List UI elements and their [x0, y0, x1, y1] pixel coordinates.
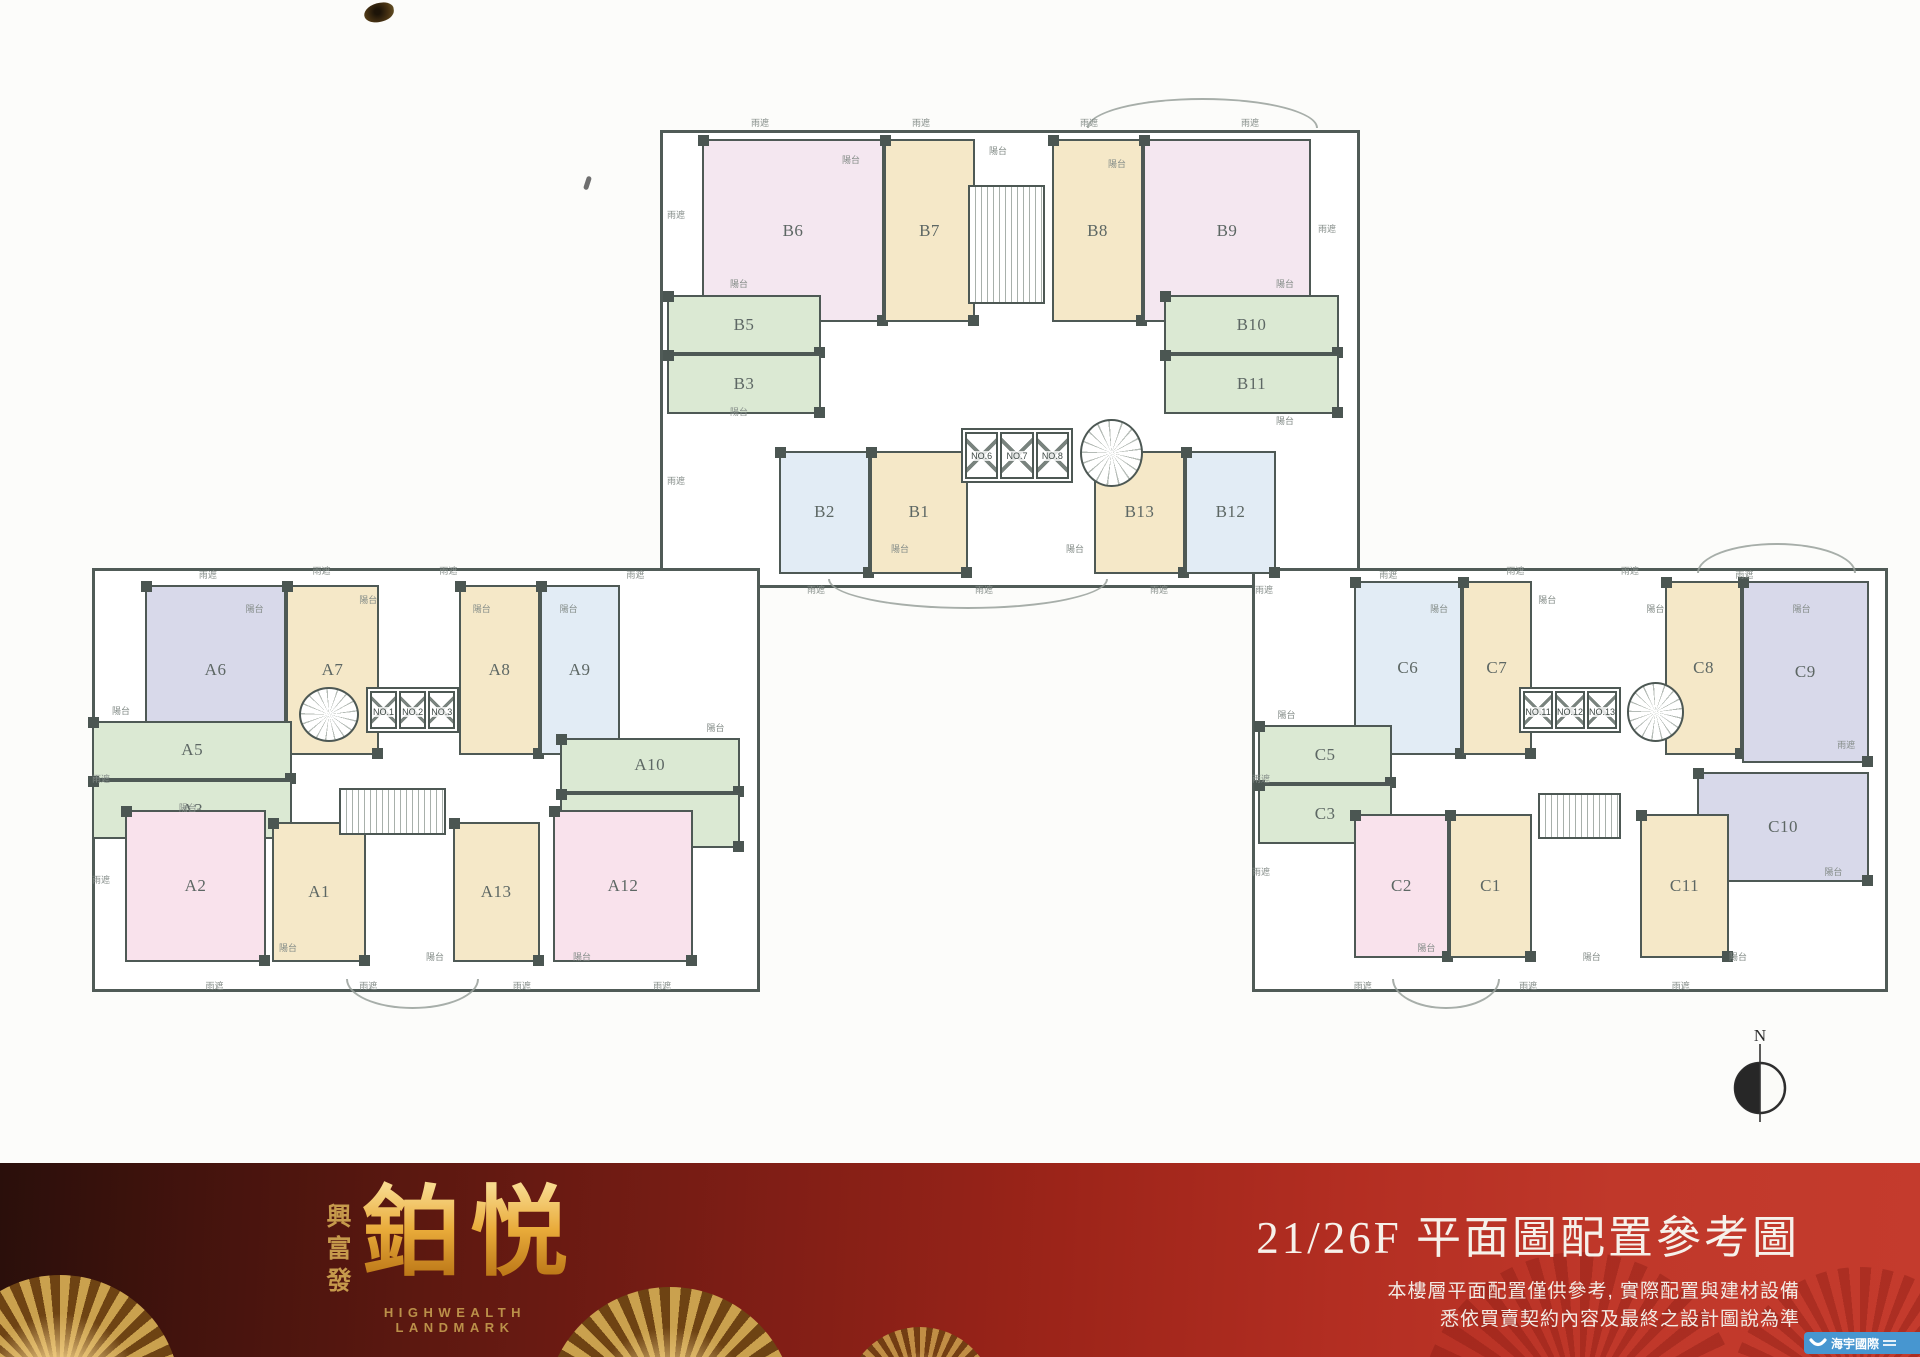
- unit-b8: B8: [1052, 139, 1143, 322]
- elevator-label: NO.6: [967, 451, 996, 461]
- annotation-label: 陽台: [989, 144, 1007, 157]
- elevator-cell: NO.1: [370, 691, 397, 730]
- brand-name: 鉑悦: [362, 1181, 578, 1289]
- unit-b2: B2: [779, 451, 870, 575]
- annotation-label: 陽台: [891, 542, 909, 555]
- annotation-label: 陽台: [426, 950, 444, 963]
- elevator-cell: NO.7: [1000, 432, 1033, 479]
- watermark-fine-print: [1883, 1340, 1896, 1346]
- elevator-label: NO.12: [1557, 707, 1583, 717]
- unit-label: C10: [1768, 817, 1798, 837]
- annotation-label: 陽台: [246, 602, 264, 615]
- annotation-label: 雨遮: [1318, 222, 1336, 235]
- elevator-label: NO.7: [1002, 451, 1031, 461]
- unit-a2: A2: [125, 810, 265, 963]
- annotation-label: 雨遮: [513, 979, 531, 992]
- unit-label: C3: [1315, 804, 1336, 824]
- watermark-logo-icon: [1809, 1337, 1827, 1349]
- entrance-arc: [828, 579, 1108, 609]
- unit-label: A2: [185, 876, 207, 896]
- annotation-label: 雨遮: [312, 564, 330, 577]
- annotation-label: 雨遮: [359, 979, 377, 992]
- annotation-label: 陽台: [112, 704, 130, 717]
- annotation-label: 雨遮: [439, 564, 457, 577]
- elevator-bank: NO.1NO.2NO.3: [366, 687, 460, 734]
- unit-label: C9: [1795, 662, 1816, 682]
- watermark-text: 海宇國際: [1831, 1335, 1879, 1352]
- stairwell: [968, 185, 1045, 304]
- unit-b11: B11: [1164, 354, 1339, 414]
- unit-label: A7: [322, 660, 344, 680]
- annotation-label: 陽台: [560, 602, 578, 615]
- unit-label: C8: [1693, 658, 1714, 678]
- unit-a8: A8: [459, 585, 539, 755]
- unit-b12: B12: [1185, 451, 1276, 575]
- fan-decoration: [0, 1275, 180, 1357]
- annotation-label: 雨遮: [667, 474, 685, 487]
- annotation-label: 陽台: [1729, 950, 1747, 963]
- building-b: B6B7B8B9B5B3B10B11B2B1B13B12NO.6NO.7NO.8…: [660, 130, 1360, 588]
- annotation-label: 陽台: [359, 593, 377, 606]
- unit-label: B7: [919, 221, 940, 241]
- unit-label: B11: [1237, 374, 1266, 394]
- annotation-label: 雨遮: [1241, 116, 1259, 129]
- annotation-label: 陽台: [730, 405, 748, 418]
- watermark-badge: 海宇國際: [1804, 1332, 1920, 1354]
- building-c: C6C7C8C9C5C3C10C2C1C11NO.11NO.12NO.13雨遮陽…: [1252, 568, 1888, 992]
- unit-label: A1: [308, 882, 330, 902]
- unit-label: B9: [1217, 221, 1238, 241]
- unit-label: A10: [634, 755, 665, 775]
- annotation-label: 雨遮: [92, 772, 110, 785]
- annotation-label: 陽台: [1277, 708, 1295, 721]
- annotation-label: 雨遮: [1506, 564, 1524, 577]
- elevator-bank: NO.6NO.7NO.8: [961, 428, 1073, 483]
- unit-label: A9: [569, 660, 591, 680]
- unit-label: B12: [1216, 502, 1246, 522]
- annotation-label: 雨遮: [1379, 568, 1397, 581]
- unit-label: B10: [1237, 315, 1267, 335]
- compass-dial: [1722, 1044, 1798, 1124]
- annotation-label: 陽台: [1793, 602, 1811, 615]
- unit-label: A6: [205, 660, 227, 680]
- unit-label: C7: [1486, 658, 1507, 678]
- annotation-label: 雨遮: [1354, 979, 1372, 992]
- unit-a10: A10: [560, 738, 740, 793]
- entrance-arc: [1697, 543, 1856, 573]
- annotation-label: 陽台: [1538, 593, 1556, 606]
- annotation-label: 雨遮: [1252, 865, 1270, 878]
- unit-c5: C5: [1258, 725, 1392, 784]
- unit-a5: A5: [92, 721, 292, 780]
- unit-label: A13: [481, 882, 512, 902]
- elevator-label: NO.2: [401, 707, 424, 717]
- spiral-stairwell: [1080, 419, 1143, 488]
- annotation-label: 陽台: [1276, 277, 1294, 290]
- unit-label: B13: [1125, 502, 1155, 522]
- annotation-label: 陽台: [1583, 950, 1601, 963]
- annotation-label: 雨遮: [912, 116, 930, 129]
- unit-label: B5: [734, 315, 755, 335]
- footer-banner: 興富發 鉑悦 HIGHWEALTH LANDMARK 21/26F 平面圖配置參…: [0, 1163, 1920, 1357]
- spiral-stairwell: [1627, 682, 1684, 741]
- annotation-label: 陽台: [1066, 542, 1084, 555]
- elevator-cell: NO.12: [1555, 691, 1585, 730]
- elevator-label: NO.11: [1525, 707, 1551, 717]
- title-block: 21/26F 平面圖配置參考圖 本樓層平面配置僅供參考, 實際配置與建材設備 悉…: [1256, 1201, 1800, 1333]
- disclaimer-line-1: 本樓層平面配置僅供參考, 實際配置與建材設備: [1256, 1278, 1800, 1306]
- scan-mark: [583, 176, 592, 191]
- stairwell: [339, 788, 446, 835]
- brand-subtitle: HIGHWEALTH LANDMARK: [320, 1305, 590, 1335]
- annotation-label: 雨遮: [1150, 583, 1168, 596]
- annotation-label: 陽台: [279, 941, 297, 954]
- annotation-label: 雨遮: [1672, 979, 1690, 992]
- elevator-cell: NO.13: [1587, 691, 1617, 730]
- unit-label: C5: [1315, 745, 1336, 765]
- annotation-label: 雨遮: [1735, 568, 1753, 581]
- elevator-cell: NO.8: [1036, 432, 1069, 479]
- annotation-label: 雨遮: [667, 208, 685, 221]
- unit-a9: A9: [540, 585, 620, 755]
- elevator-cell: NO.6: [965, 432, 998, 479]
- unit-a12: A12: [553, 810, 693, 963]
- annotation-label: 雨遮: [1519, 979, 1537, 992]
- unit-label: A12: [608, 876, 639, 896]
- unit-label: A5: [181, 740, 203, 760]
- annotation-label: 陽台: [1417, 941, 1435, 954]
- plan-sheet: B6B7B8B9B5B3B10B11B2B1B13B12NO.6NO.7NO.8…: [0, 0, 1920, 1357]
- unit-label: C11: [1670, 876, 1699, 896]
- unit-b10: B10: [1164, 295, 1339, 355]
- annotation-label: 雨遮: [653, 979, 671, 992]
- unit-b7: B7: [884, 139, 975, 322]
- unit-label: B3: [734, 374, 755, 394]
- annotation-label: 雨遮: [1621, 564, 1639, 577]
- brand-company: 興富發: [318, 1203, 354, 1299]
- annotation-label: 陽台: [707, 721, 725, 734]
- elevator-label: NO.1: [372, 707, 395, 717]
- annotation-label: 雨遮: [199, 568, 217, 581]
- unit-label: B1: [909, 502, 930, 522]
- unit-label: A8: [489, 660, 511, 680]
- annotation-label: 雨遮: [1252, 772, 1270, 785]
- annotation-label: 陽台: [1824, 865, 1842, 878]
- annotation-label: 陽台: [730, 277, 748, 290]
- north-label: N: [1722, 1026, 1798, 1044]
- building-a: A6A7A8A9A5A3A10A11A2A1A13A12NO.1NO.2NO.3…: [92, 568, 760, 992]
- entrance-arc: [1087, 98, 1318, 128]
- spiral-stairwell: [299, 687, 359, 742]
- annotation-label: 陽台: [1108, 157, 1126, 170]
- entrance-arc: [1392, 979, 1500, 1009]
- north-compass: N: [1722, 1026, 1798, 1126]
- elevator-cell: NO.11: [1523, 691, 1553, 730]
- annotation-label: 雨遮: [92, 873, 110, 886]
- unit-b1: B1: [870, 451, 968, 575]
- unit-label: B2: [814, 502, 835, 522]
- annotation-label: 雨遮: [1080, 116, 1098, 129]
- annotation-label: 雨遮: [975, 583, 993, 596]
- unit-label: B6: [783, 221, 804, 241]
- unit-b5: B5: [667, 295, 821, 355]
- annotation-label: 陽台: [573, 950, 591, 963]
- elevator-cell: NO.3: [428, 691, 455, 730]
- annotation-label: 陽台: [179, 801, 197, 814]
- annotation-label: 雨遮: [206, 979, 224, 992]
- annotation-label: 陽台: [1276, 414, 1294, 427]
- annotation-label: 雨遮: [1837, 738, 1855, 751]
- elevator-bank: NO.11NO.12NO.13: [1519, 687, 1621, 734]
- unit-label: B8: [1087, 221, 1108, 241]
- unit-c2: C2: [1354, 814, 1449, 958]
- unit-label: C6: [1397, 658, 1418, 678]
- unit-label: C1: [1480, 876, 1501, 896]
- unit-c1: C1: [1449, 814, 1532, 958]
- unit-label: C2: [1391, 876, 1412, 896]
- disclaimer-line-2: 悉依買賣契約內容及最終之設計圖說為準: [1256, 1306, 1800, 1334]
- fan-decoration: [845, 1327, 995, 1357]
- elevator-label: NO.8: [1038, 451, 1067, 461]
- ink-speck: [363, 1, 395, 24]
- unit-a13: A13: [453, 822, 540, 962]
- elevator-label: NO.13: [1589, 707, 1615, 717]
- annotation-label: 雨遮: [751, 116, 769, 129]
- annotation-label: 雨遮: [1255, 583, 1273, 596]
- annotation-label: 陽台: [1430, 602, 1448, 615]
- annotation-label: 雨遮: [807, 583, 825, 596]
- floor-plan-title: 21/26F 平面圖配置參考圖: [1256, 1201, 1800, 1266]
- annotation-label: 陽台: [1646, 602, 1664, 615]
- elevator-cell: NO.2: [399, 691, 426, 730]
- elevator-label: NO.3: [430, 707, 453, 717]
- annotation-label: 陽台: [842, 153, 860, 166]
- annotation-label: 陽台: [473, 602, 491, 615]
- stairwell: [1538, 793, 1621, 840]
- annotation-label: 雨遮: [626, 568, 644, 581]
- unit-c11: C11: [1640, 814, 1729, 958]
